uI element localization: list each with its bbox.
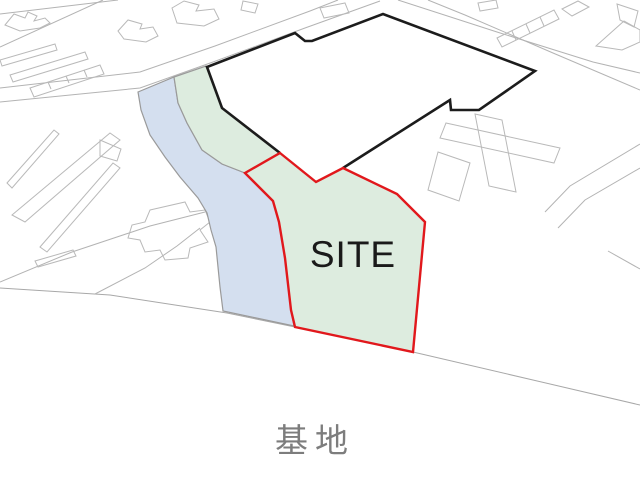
- building-w-rowhouse: [30, 65, 104, 97]
- building-e-complex-block: [428, 152, 470, 201]
- building-w-strip-2: [10, 52, 88, 82]
- building-nw-blob-2: [118, 20, 158, 42]
- building-w-rowhouse-divider: [84, 70, 87, 77]
- building-ne-small-1: [562, 1, 589, 16]
- building-sw-strip-1: [7, 130, 59, 188]
- building-n-small: [241, 1, 258, 13]
- building-w-rowhouse-divider: [66, 76, 69, 83]
- building-sw-strip-3: [40, 163, 120, 252]
- building-ne-rowhouse-divider: [526, 24, 530, 33]
- building-w-rowhouse-divider: [48, 82, 51, 89]
- road-east-a: [545, 144, 640, 212]
- building-nw-blob-1: [5, 12, 50, 31]
- road-upper-b: [0, 0, 103, 47]
- building-sw-strip-2: [12, 133, 120, 222]
- road-upper-a: [0, 0, 118, 14]
- building-w-small: [100, 140, 121, 161]
- building-ne-corner: [617, 4, 638, 27]
- road-east-c: [608, 251, 640, 269]
- road-sw-b: [95, 228, 200, 294]
- site-label: SITE: [310, 234, 396, 276]
- building-ne-small-2: [478, 0, 498, 11]
- building-n-blob: [172, 1, 219, 26]
- road-sw-a: [0, 212, 205, 282]
- site-plan-figure: SITE 基地: [0, 0, 640, 503]
- caption-label: 基地: [275, 414, 355, 462]
- road-east-b: [558, 168, 640, 228]
- building-e-large: [596, 21, 640, 50]
- building-e-complex-bar: [440, 123, 560, 163]
- building-ne-rowhouse-divider: [540, 17, 544, 26]
